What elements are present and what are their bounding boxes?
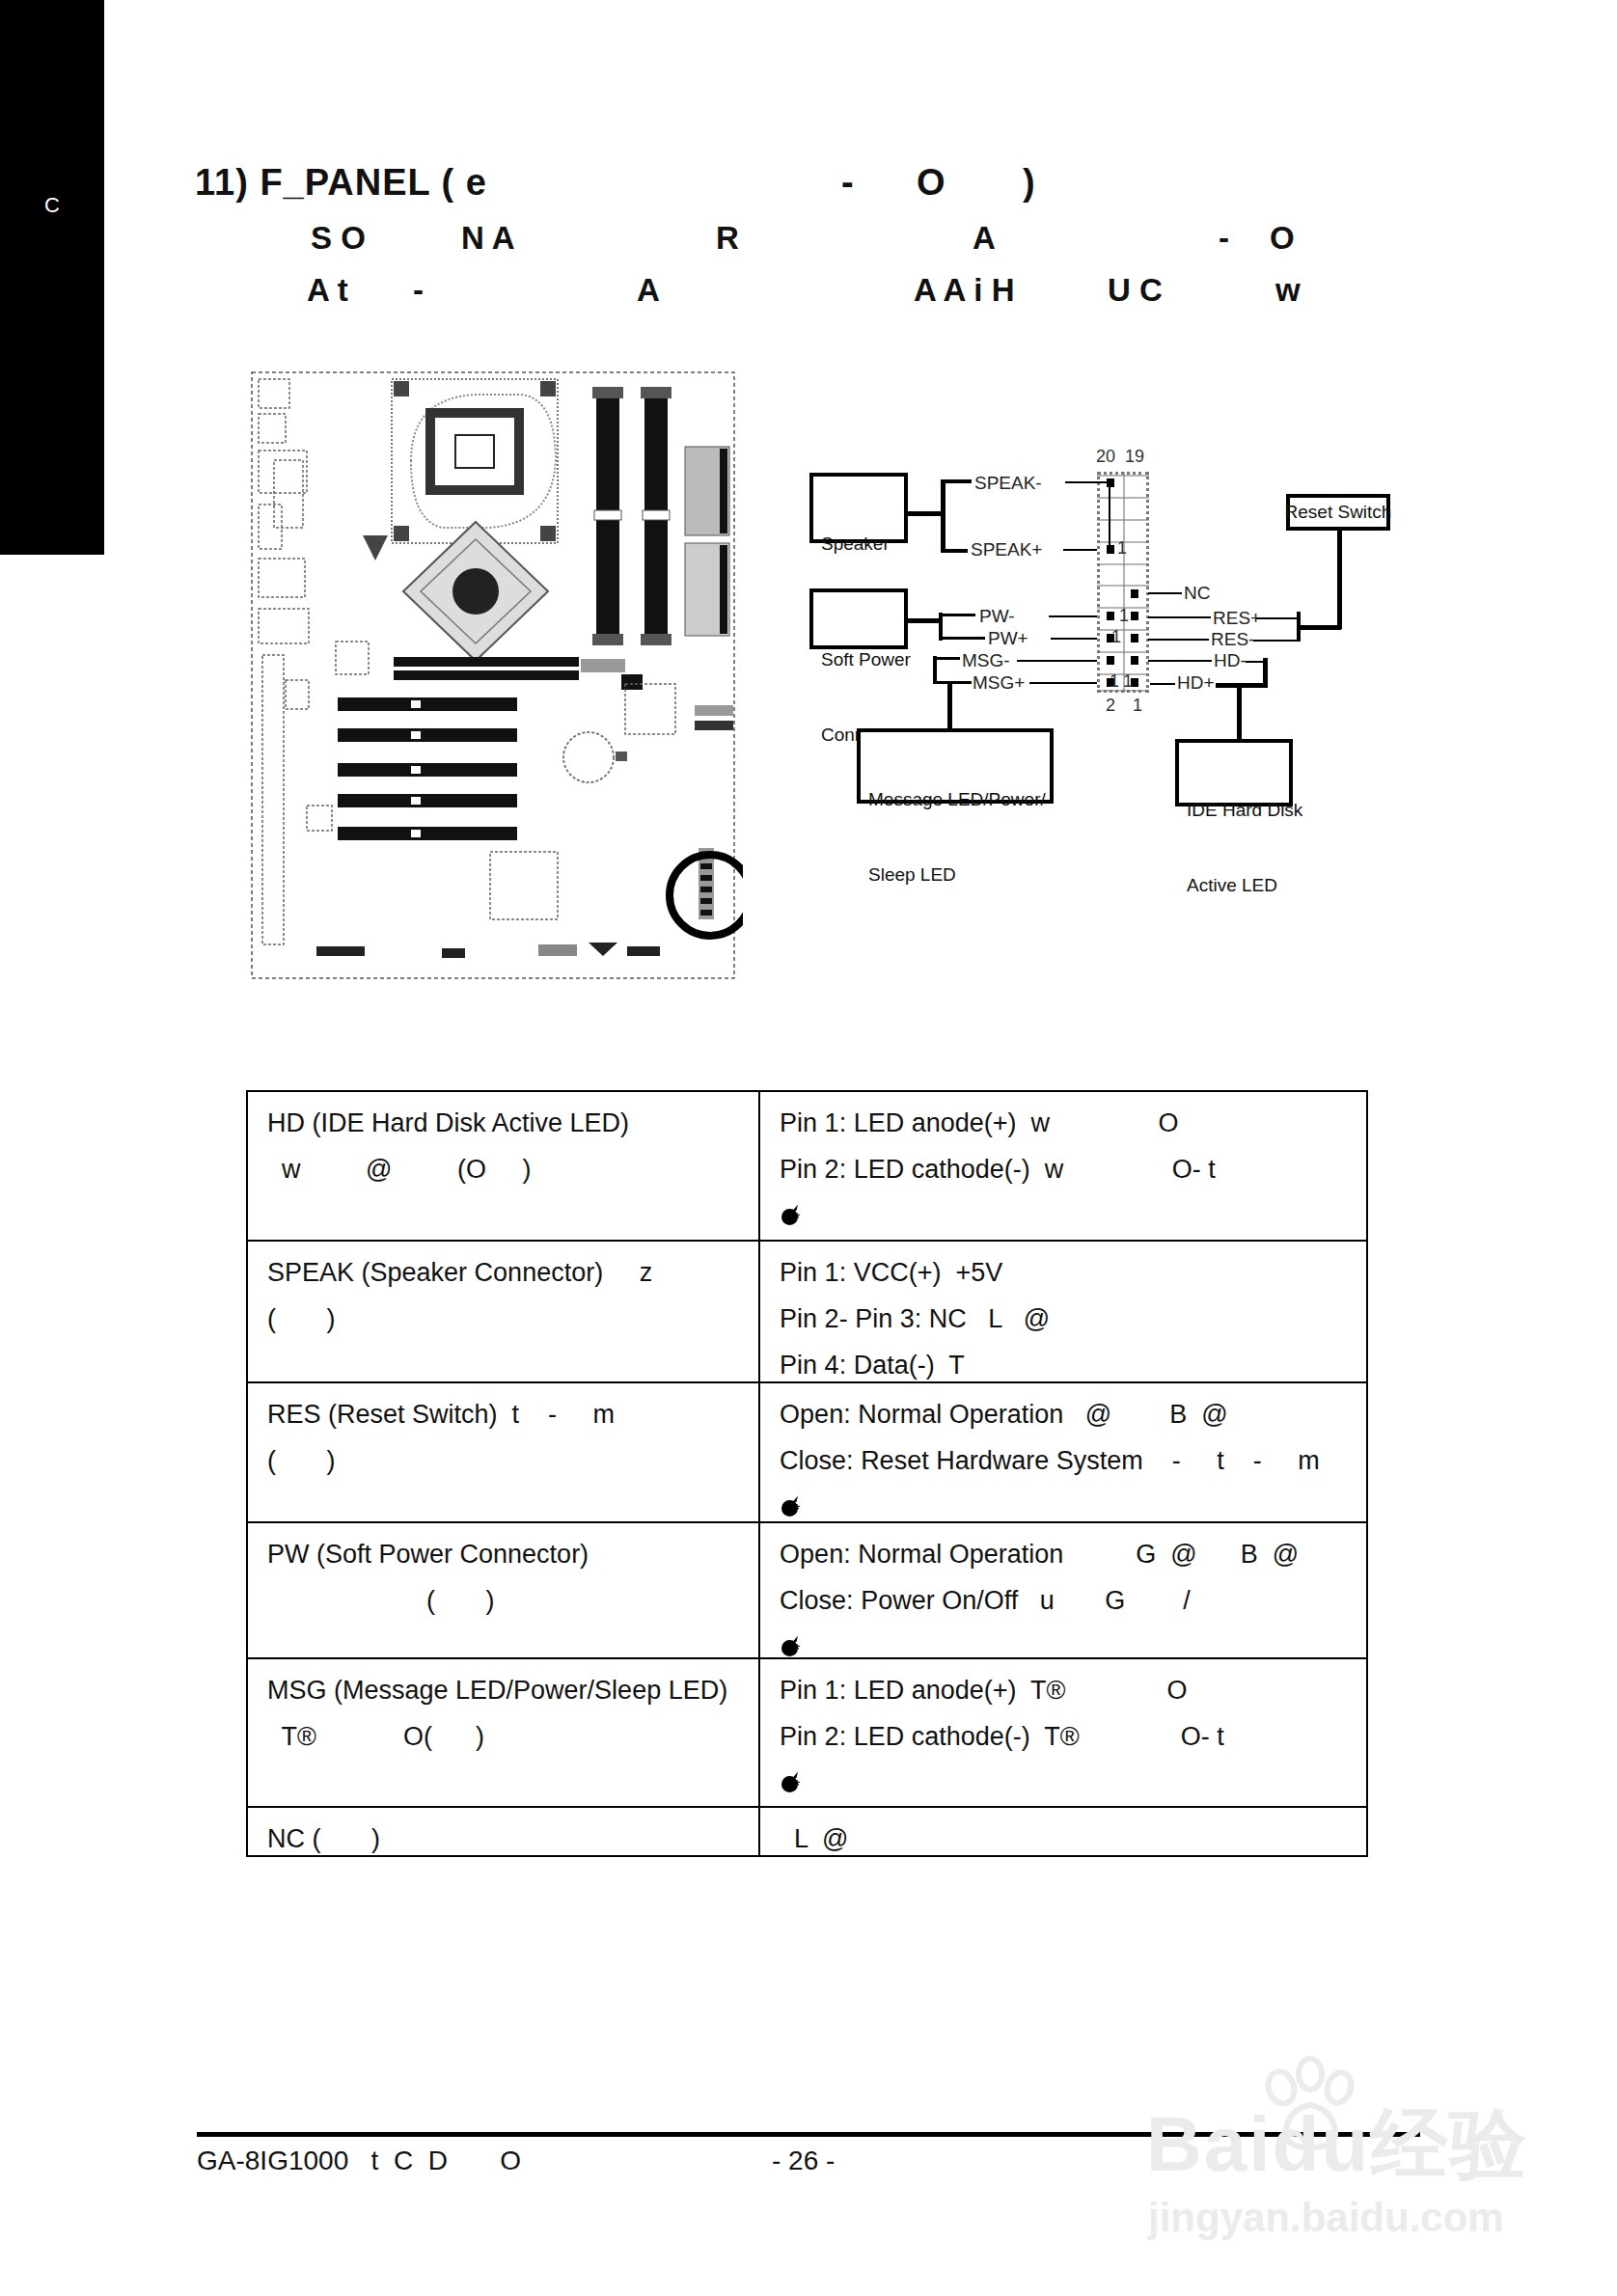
table-row: SPEAK (Speaker Connector) z( )Pin 1: VCC… — [248, 1240, 1366, 1381]
pin1-marker-pw: 1 — [1111, 627, 1121, 647]
connector-name-cell: MSG (Message LED/Power/Sleep LED) T® O( … — [248, 1659, 760, 1806]
pci-slots — [338, 697, 517, 840]
heading-text-fragment: w — [1275, 272, 1301, 309]
table-text-line: Pin 2: LED cathode(-) T® O- t — [780, 1713, 1366, 1760]
table-text-line: Close: Reset Hardware System - t - m — [780, 1437, 1366, 1484]
table-text-line: Pin 2: LED cathode(-) w O- t — [780, 1146, 1366, 1192]
connector-name-cell: RES (Reset Switch) t - m( ) — [248, 1383, 760, 1521]
cpu-socket — [392, 379, 558, 543]
table-row: HD (IDE Hard Disk Active LED) w @ (O )Pi… — [248, 1092, 1366, 1240]
speak-span-line — [1109, 482, 1110, 550]
table-text-line: Open: Normal Operation G @ B @ — [780, 1531, 1366, 1577]
pin-assignment-cell: Pin 1: LED anode(+) w OPin 2: LED cathod… — [760, 1092, 1366, 1240]
softpower-box-line — [908, 618, 943, 623]
table-text-line: L @ — [780, 1816, 1366, 1862]
speaker-bracket — [941, 479, 946, 553]
reset-switch-box: Reset Switch — [1286, 494, 1390, 531]
motherboard-diagram — [249, 369, 743, 987]
pin-pw-minus — [1107, 612, 1114, 620]
heading-text-fragment: U C — [1108, 272, 1163, 309]
table-row: MSG (Message LED/Power/Sleep LED) T® O( … — [248, 1657, 1366, 1806]
note-line — [780, 1192, 1366, 1239]
watermark-domain: jingyan.baidu.com — [1148, 2195, 1504, 2241]
res-minus-line — [1148, 639, 1209, 641]
heading-text-fragment: A — [973, 220, 996, 257]
table-text-line: Pin 1: LED anode(+) w O — [780, 1100, 1366, 1146]
ide-connectors — [685, 447, 729, 636]
pin1-marker-hd: 1 — [1123, 671, 1133, 692]
table-text-line: Pin 4: Data(-) T — [780, 1342, 1366, 1388]
label-speak-plus: SPEAK+ — [971, 539, 1042, 560]
label-res-plus: RES+ — [1213, 608, 1261, 629]
label-hd-plus: HD+ — [1177, 672, 1215, 694]
connector-name-cell: SPEAK (Speaker Connector) z( ) — [248, 1242, 760, 1381]
heading-text-fragment: - — [413, 272, 424, 309]
res-plus-line — [1148, 616, 1211, 618]
hd-minus-line — [1148, 660, 1212, 662]
pin-number-20: 20 — [1096, 447, 1115, 467]
heading-text-fragment: - — [841, 162, 855, 204]
chip-small — [307, 806, 332, 831]
label-hd-minus: HD- — [1214, 650, 1247, 671]
pin-assignment-cell: Pin 1: LED anode(+) T® OPin 2: LED catho… — [760, 1659, 1366, 1806]
hd-plus-ext — [1216, 683, 1268, 688]
table-text-line: ( ) — [267, 1296, 758, 1342]
bios-chip — [490, 852, 558, 919]
pw-minus-line — [1049, 615, 1097, 617]
pin-res-plus — [1131, 612, 1138, 620]
f-panel-pin-header — [1097, 472, 1149, 693]
table-text-line: HD (IDE Hard Disk Active LED) — [267, 1100, 758, 1146]
speaker-bracket-top — [941, 479, 972, 483]
back-panel-io — [259, 379, 309, 944]
heading-text-fragment: O — [1270, 220, 1295, 257]
heading-text-fragment: A A i H — [914, 272, 1015, 309]
table-text-line: PW (Soft Power Connector) — [267, 1531, 758, 1577]
speaker-box-line — [908, 511, 945, 516]
table-text-line: NC ( ) — [267, 1816, 758, 1862]
label-pw-minus: PW- — [979, 606, 1015, 627]
northbridge-heatsink — [403, 522, 548, 661]
speaker-bracket-bottom — [941, 549, 968, 553]
heading-text-fragment: N A — [461, 220, 515, 257]
heading-text-fragment: 11) F_PANEL ( e — [195, 162, 487, 204]
pw-minus-stub — [939, 614, 975, 616]
msg-minus-stub — [933, 657, 960, 660]
table-text-line: Pin 1: LED anode(+) T® O — [780, 1667, 1366, 1713]
label-pw-plus: PW+ — [988, 628, 1028, 649]
pin1-marker-msg: 1 — [1110, 671, 1119, 692]
msg-box-drop — [947, 682, 952, 730]
chip-square — [336, 642, 369, 674]
battery-tab — [616, 752, 627, 761]
power-connector — [363, 535, 388, 560]
pin-number-19: 19 — [1125, 447, 1144, 467]
table-text-line: Pin 2- Pin 3: NC L @ — [780, 1296, 1366, 1342]
chapter-letter: C — [44, 193, 60, 218]
label-res-minus: RES- — [1211, 629, 1254, 650]
message-led-box: Message LED/Power/ Sleep LED — [857, 728, 1054, 804]
msg-minus-line — [1017, 660, 1097, 662]
pin-assignment-cell: Open: Normal Operation G @ B @Close: Pow… — [760, 1523, 1366, 1657]
res-plus-ext — [1256, 617, 1299, 619]
heading-text-fragment: R — [716, 220, 739, 257]
southbridge-chip — [625, 684, 675, 734]
heading-text-fragment: O — [917, 162, 946, 204]
nc-line — [1148, 592, 1182, 594]
agp-slot — [394, 657, 643, 690]
dimm-slots — [592, 387, 671, 645]
label-speak-minus: SPEAK- — [974, 473, 1042, 494]
pin-res-minus — [1131, 634, 1138, 642]
pw-plus-stub — [939, 637, 985, 640]
label-msg-minus: MSG- — [962, 650, 1010, 671]
heading-text-fragment: A t — [307, 272, 348, 309]
table-row: NC ( ) L @ — [248, 1806, 1366, 1855]
jumper-1 — [695, 705, 733, 716]
note-line — [780, 1760, 1366, 1806]
hd-plus-line — [1150, 683, 1175, 685]
table-text-line: Pin 1: VCC(+) +5V — [780, 1249, 1366, 1296]
heading-text-fragment: - — [1219, 220, 1229, 257]
connector-name-cell: HD (IDE Hard Disk Active LED) w @ (O ) — [248, 1092, 760, 1240]
soft-power-connector-box: Soft Power Connector — [809, 588, 908, 649]
pin-number-2: 2 — [1106, 696, 1115, 716]
msg-bracket — [933, 656, 937, 684]
table-row: PW (Soft Power Connector) ( )Open: Norma… — [248, 1521, 1366, 1657]
watermark-brand: Baidu经验 — [1146, 2093, 1528, 2198]
table-row: RES (Reset Switch) t - m( )Open: Normal … — [248, 1381, 1366, 1521]
heading-text-fragment: ) — [1023, 162, 1036, 204]
pin-assignment-cell: Pin 1: VCC(+) +5VPin 2- Pin 3: NC L @Pin… — [760, 1242, 1366, 1381]
jumper-2 — [695, 721, 733, 730]
baidu-watermark: Baidu经验 jingyan.baidu.com — [1110, 2036, 1573, 2267]
ide-box-drop — [1237, 686, 1242, 741]
pin-number-1: 1 — [1133, 696, 1142, 716]
chapter-side-tab: C — [0, 0, 104, 555]
pin1-marker-res: 1 — [1119, 606, 1129, 626]
heading-text-fragment: A — [637, 272, 660, 309]
pin-assignment-cell: L @ — [760, 1808, 1366, 1855]
label-msg-plus: MSG+ — [973, 672, 1025, 694]
bottom-connectors — [316, 943, 660, 958]
table-text-line: ( ) — [267, 1577, 758, 1624]
res-riser-horiz — [1299, 625, 1341, 630]
table-text-line: RES (Reset Switch) t - m — [267, 1391, 758, 1437]
msg-plus-line — [1029, 682, 1097, 684]
msg-plus-stub — [933, 681, 972, 684]
pin-assignment-table: HD (IDE Hard Disk Active LED) w @ (O )Pi… — [246, 1090, 1368, 1857]
res-minus-ext — [1253, 640, 1298, 642]
motherboard-art — [249, 369, 743, 983]
heading-text-fragment: S O — [311, 220, 366, 257]
table-text-line: Close: Power On/Off u G / — [780, 1577, 1366, 1624]
pin-msg-minus — [1107, 656, 1114, 665]
ide-hdd-led-box: IDE Hard Disk Active LED — [1175, 739, 1293, 806]
label-nc: NC — [1184, 583, 1210, 604]
table-text-line: Open: Normal Operation @ B @ — [780, 1391, 1366, 1437]
res-riser-vert — [1337, 531, 1342, 629]
speaker-connector-box: Speaker Connector — [809, 473, 908, 543]
footer-page-number: - 26 - — [772, 2146, 835, 2176]
bomb-icon — [781, 1209, 798, 1225]
table-text-line: ( ) — [267, 1437, 758, 1484]
speak-plus-line — [1063, 549, 1097, 551]
table-text-line: SPEAK (Speaker Connector) z — [267, 1249, 758, 1296]
connector-name-cell: PW (Soft Power Connector) ( ) — [248, 1523, 760, 1657]
pw-plus-line — [1051, 638, 1097, 640]
pin-hd-minus — [1131, 656, 1138, 665]
connector-name-cell: NC ( ) — [248, 1808, 760, 1855]
table-text-line: T® O( ) — [267, 1713, 758, 1760]
pin1-marker-speak: 1 — [1117, 538, 1127, 559]
battery — [563, 732, 614, 782]
pin-assignment-cell: Open: Normal Operation @ B @Close: Reset… — [760, 1383, 1366, 1521]
f-panel-highlight — [670, 848, 743, 936]
bomb-icon — [781, 1640, 798, 1656]
table-text-line: MSG (Message LED/Power/Sleep LED) — [267, 1667, 758, 1713]
pin-nc — [1131, 589, 1138, 598]
bomb-icon — [781, 1500, 798, 1517]
speak-minus-line — [1065, 481, 1108, 483]
footer-model: GA-8IG1000 t C D O — [197, 2146, 521, 2176]
manual-page: { "side_tab": {"letter": "C"}, "heading"… — [0, 0, 1617, 2296]
bomb-icon — [781, 1776, 798, 1792]
table-text-line: w @ (O ) — [267, 1146, 758, 1192]
